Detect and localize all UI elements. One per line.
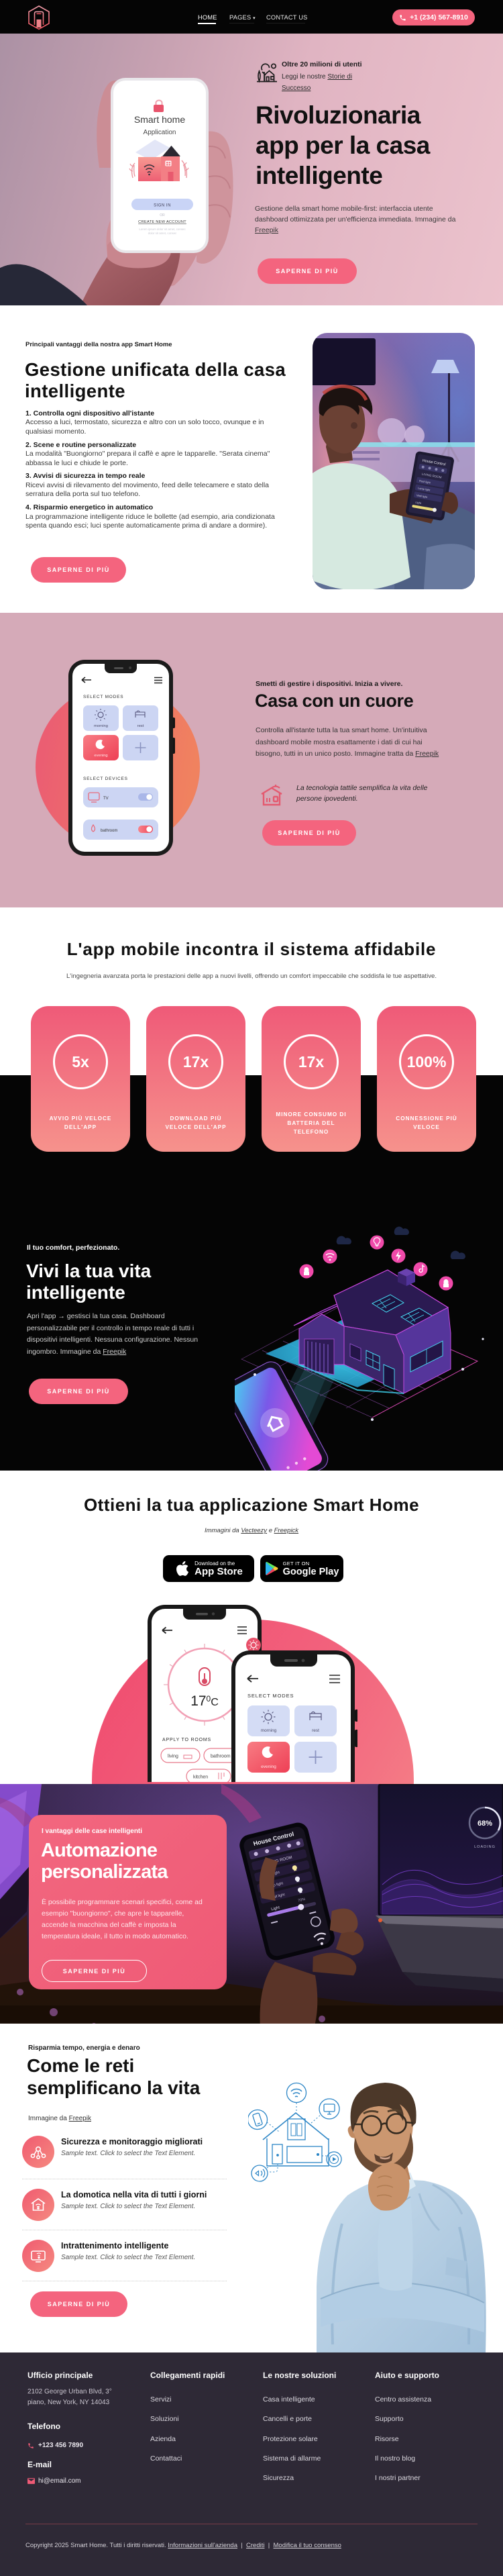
svg-text:TV: TV [103,797,109,801]
svg-text:Application: Application [144,129,176,136]
svg-text:kitchen: kitchen [193,1775,208,1780]
svg-text:CREATE NEW ACCOUNT: CREATE NEW ACCOUNT [138,220,186,224]
svg-text:OR: OR [160,213,165,217]
svg-text:SELECT MODES: SELECT MODES [247,1693,294,1699]
svg-text:Smart home: Smart home [134,114,185,125]
svg-text:rest: rest [312,1728,319,1733]
svg-text:LOADING: LOADING [474,1845,496,1849]
svg-text:Lorem ipsum dolor sit amet, co: Lorem ipsum dolor sit amet, consec [139,228,186,231]
svg-text:rest: rest [137,724,144,728]
svg-text:bathroom: bathroom [211,1754,231,1759]
svg-text:68%: 68% [478,1820,492,1828]
svg-text:morning: morning [94,724,108,728]
svg-text:APPLY TO ROOMS: APPLY TO ROOMS [162,1738,211,1742]
svg-text:bathroom: bathroom [101,829,117,833]
svg-text:evening: evening [261,1765,276,1769]
svg-text:morning: morning [261,1728,277,1733]
svg-text:SELECT MODES: SELECT MODES [83,695,123,699]
svg-text:SELECT DEVICES: SELECT DEVICES [83,777,128,781]
svg-text:living: living [168,1754,178,1759]
svg-text:evening: evening [94,754,107,758]
svg-text:dolor sit amet, consec: dolor sit amet, consec [148,232,178,235]
svg-text:SIGN IN: SIGN IN [154,204,171,208]
